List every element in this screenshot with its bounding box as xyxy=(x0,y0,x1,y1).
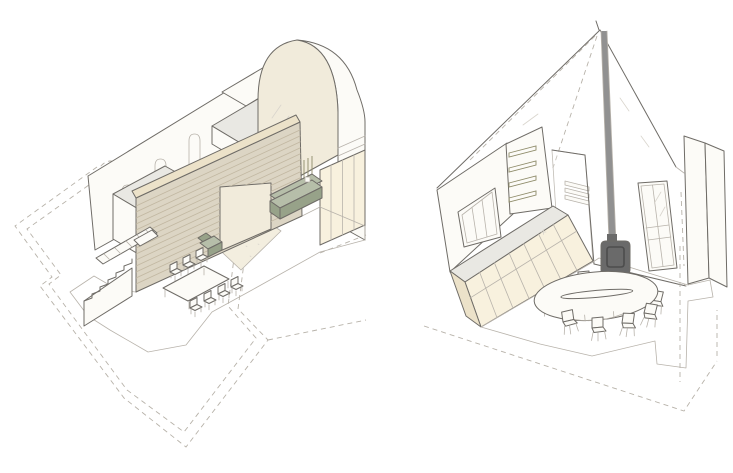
shelf-wall xyxy=(506,127,552,214)
wood-stove xyxy=(601,31,630,286)
dining-chair xyxy=(204,291,216,310)
outer-wall-edge xyxy=(705,143,727,287)
left-drawing xyxy=(15,40,366,447)
sketch-canvas xyxy=(0,0,733,473)
dining-chair xyxy=(231,277,243,296)
sofa-object xyxy=(305,177,310,182)
stove-body xyxy=(601,241,630,275)
right-drawing xyxy=(424,21,727,411)
drawing-sheet xyxy=(0,0,733,473)
stair-stringer xyxy=(84,268,132,326)
french-door xyxy=(638,181,677,271)
dining-chair xyxy=(190,298,202,317)
dining-chair xyxy=(592,317,607,341)
